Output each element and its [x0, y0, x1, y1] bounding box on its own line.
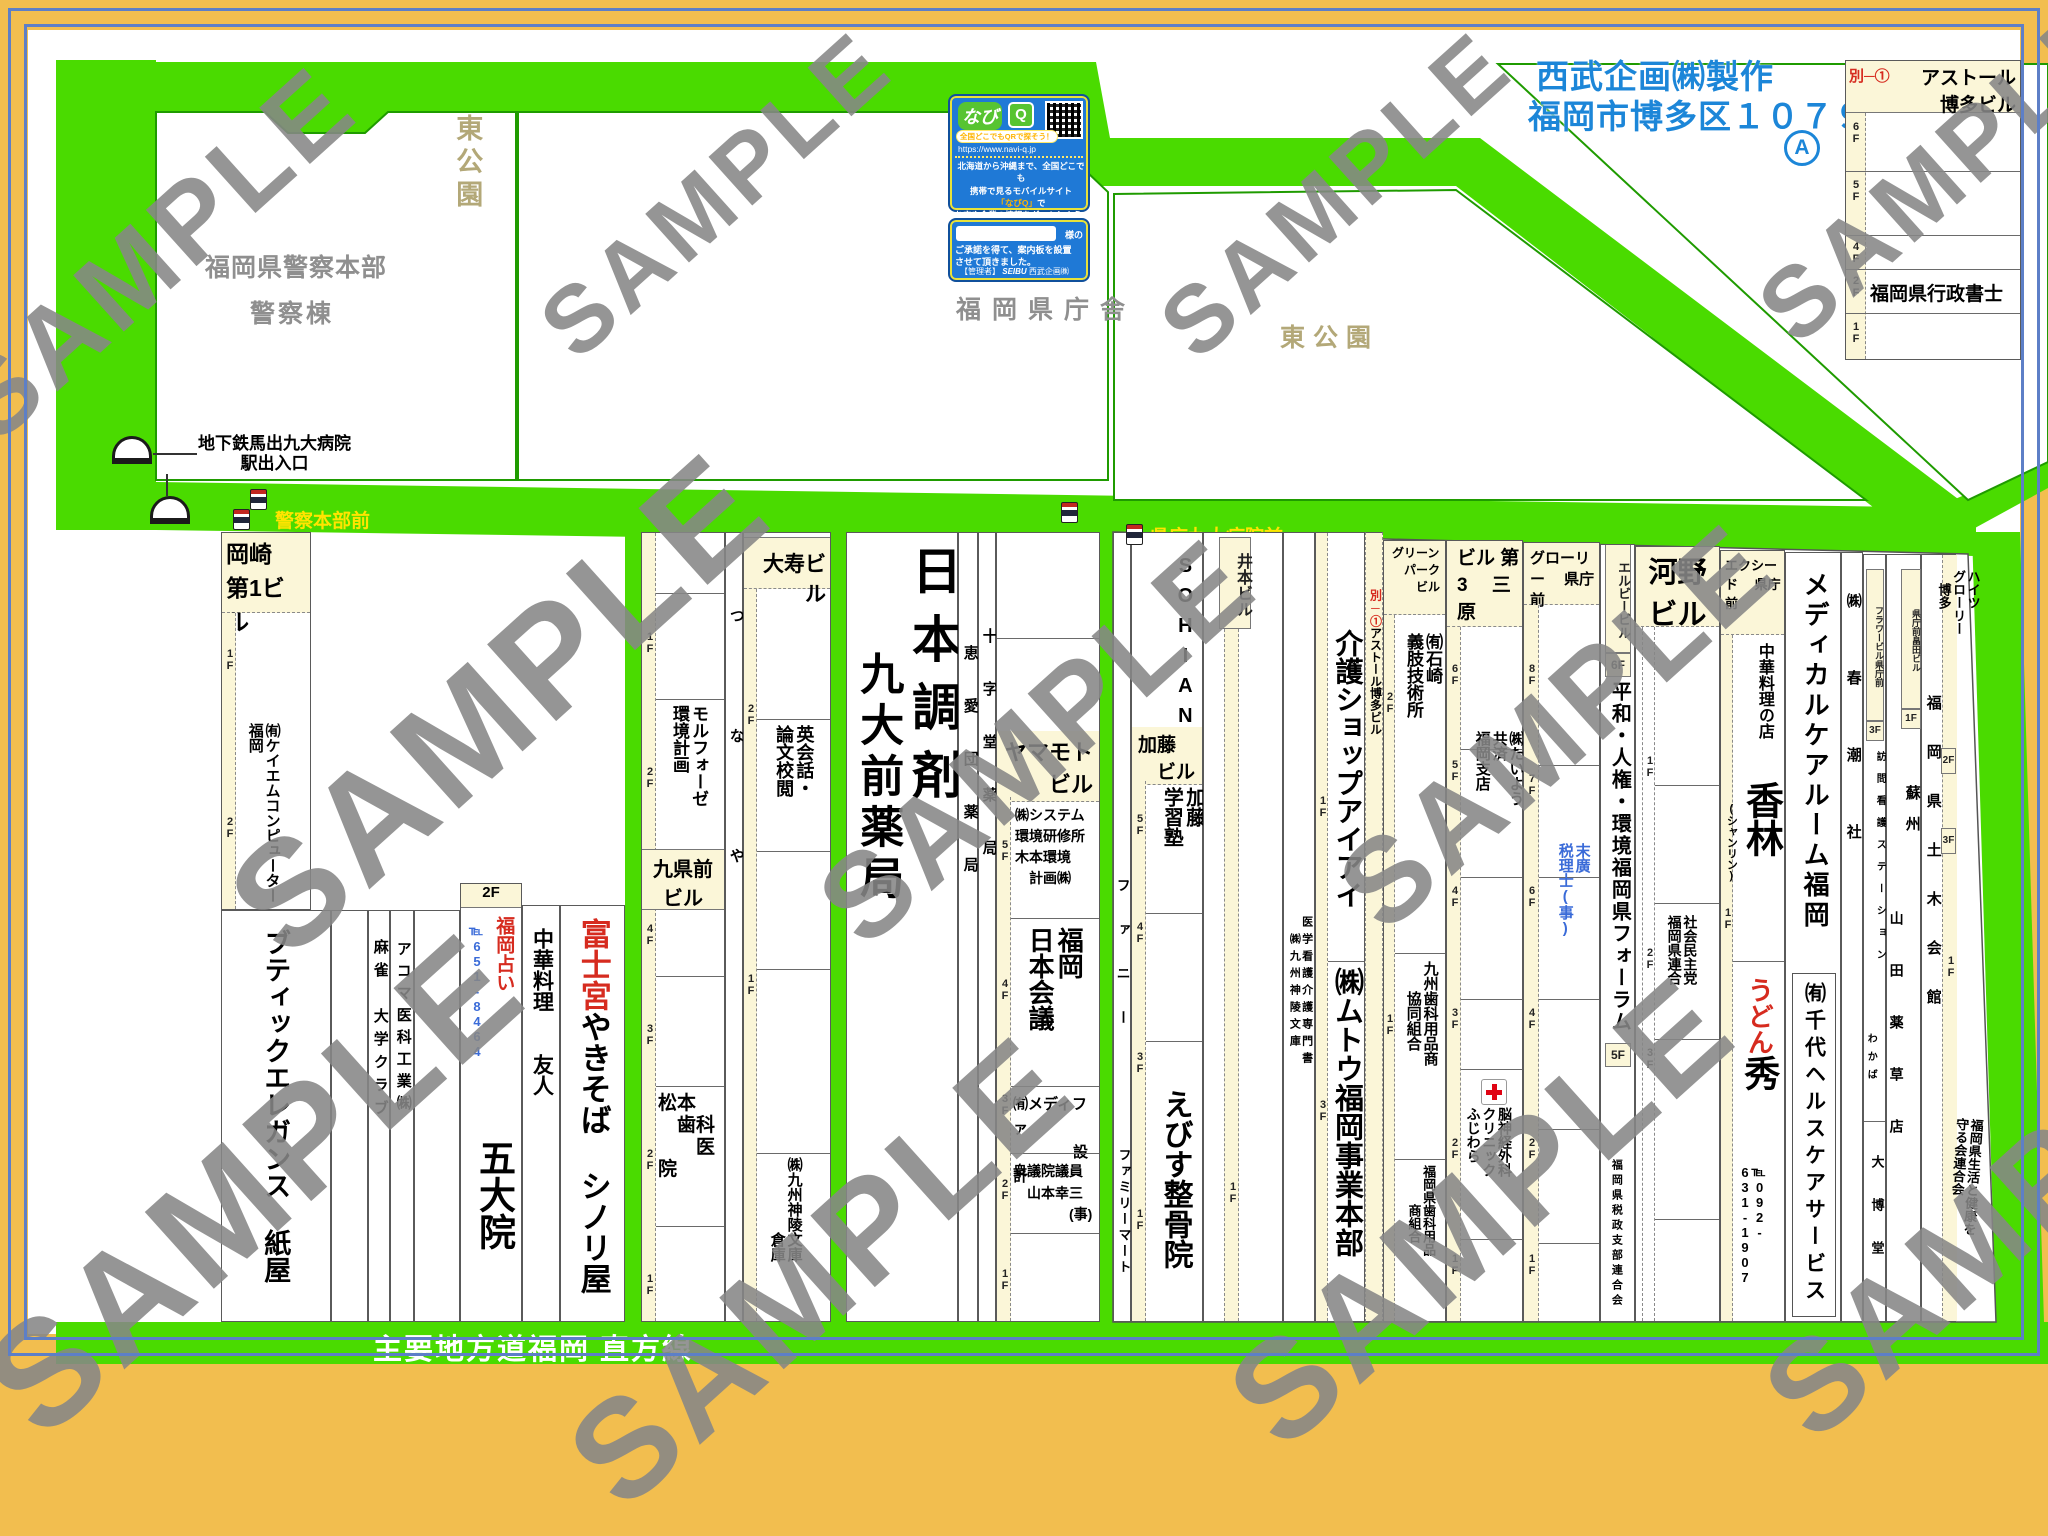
floor-label: 2F	[745, 703, 756, 727]
tenant-yakisoba-shinoriya: やきそば シノリ屋	[576, 1011, 611, 1294]
floor-label: 3F	[1134, 1051, 1145, 1075]
naviq-face-icon: Q	[1008, 102, 1034, 128]
tenant-doboku-kaikan: 福岡県土木会館	[1924, 695, 1941, 1038]
tenant-udon-tel: ℡092- 631-1907	[1737, 1165, 1766, 1285]
tenant-suehiro-zeirishi: 末廣 税理士(事)	[1556, 843, 1590, 937]
greenpark-label: グリーン パーク ビル	[1384, 541, 1445, 615]
bus-stop-icon	[250, 489, 267, 510]
floor-label: 6F	[1526, 885, 1537, 909]
floor-label: 5F	[1134, 813, 1145, 837]
bus-stop-icon	[1126, 524, 1143, 545]
floor-label: 6F	[1449, 663, 1460, 687]
legend-ref: 別─①	[1849, 65, 1890, 86]
tenant-matsumoto-dental: 松本 歯科 医院	[658, 1093, 724, 1180]
shunchosha-building: ㈱春潮社	[1841, 552, 1863, 1322]
chuka-yujin-building: 中華料理 友人	[522, 905, 560, 1322]
naviq-body1: 北海道から沖縄まで、全国どこでも	[958, 161, 1085, 183]
naviq-consent-panel: 様の ご承諾を得て、案内板を設置 させて頂きました。 【管理者】 SEIBU 西…	[948, 218, 1090, 282]
mihara-label: ビル 第3 三原	[1447, 541, 1522, 627]
tenant-ebisu-seikotsuin: えびす整骨院	[1158, 1089, 1192, 1269]
bus-stop-icon	[1061, 502, 1078, 523]
shinryo-bunko-building: 医学看護介護専門書 ㈱九州神陵文庫	[1283, 532, 1315, 1322]
consent-admin: 【管理者】	[960, 267, 1000, 276]
flower-label: フラワービル県庁前	[1866, 569, 1884, 721]
tenant-kourin: 香林	[1739, 781, 1782, 857]
tenant-igaku-shoseki-shinryo: 医学看護介護専門書 ㈱九州神陵文庫	[1288, 916, 1313, 1069]
kyukenmae-label: 九県前 ビル	[642, 849, 724, 910]
tenant-fujinomiya: 富士宮	[576, 918, 611, 1011]
glory-label: グローリー 県庁前	[1524, 543, 1599, 605]
floor-label: 1F	[1722, 907, 1733, 931]
medical-care-building: メディカルケアルーム福岡 ㈲千代ヘルスケアサービス	[1785, 552, 1841, 1322]
tenant-kyushu-shika-kumiai: 九州歯科用品商 協同組合	[1404, 961, 1438, 1066]
floor-box-3f: 3F	[1866, 721, 1884, 741]
exceed-kenchomae-building: エクシード 県庁前 1F 中華料理の店 香林 (シャンリン) うどん秀 ℡092…	[1720, 550, 1785, 1322]
map-area: 西武企画㈱製作 福岡市博多区１０７９ A 東公園 東公園 福岡県警察本部 警察棟…	[28, 30, 2020, 1334]
astor-ref-name: アストール博多ビル	[1368, 627, 1382, 735]
heights-floor-2f: 2F	[1941, 748, 1956, 774]
tenant-chiyo-healthcare: ㈲千代ヘルスケアサービス	[1802, 982, 1826, 1306]
naviq-body2: 携帯で見るモバイルサイト	[970, 186, 1072, 196]
tenant-medical-care-room: メディカルケアルーム福岡	[1800, 571, 1829, 931]
floor-box-1f: 1F	[1901, 709, 1921, 729]
tenant-kato-gakushujuku: 加藤 学習塾	[1160, 787, 1205, 847]
tenant-godaiin: 五大院	[473, 1139, 514, 1250]
naviq-logo: なび	[958, 102, 1002, 130]
floor-label: 4F	[999, 978, 1010, 1002]
naviq-promo-panel: なび Q 全国どこでもQRで探そう！ https://www.navi-q.jp…	[948, 94, 1090, 212]
tenant-yamada-yakusoten: 山田薬草店	[1888, 911, 1904, 1171]
floor-label: 2F	[644, 1148, 655, 1172]
floor-2f-header: 2F	[461, 884, 521, 908]
floor-label: 2F	[1384, 691, 1395, 715]
park-label-right: 東公園	[1280, 318, 1379, 354]
bus-stop-keisatsu: 警察本部前	[275, 506, 370, 533]
floor-label: 1F	[1317, 795, 1328, 819]
police-bldg-label: 警察棟	[250, 294, 334, 330]
flower-bldg-kenchomae: フラワービル県庁前 3F 訪問看護ステーション わかば 大博堂	[1863, 554, 1886, 1322]
okazaki-label: 岡崎 第1ビル	[222, 533, 310, 613]
floor-label: 4F	[644, 923, 655, 947]
consent-sama: 様の	[1065, 228, 1083, 241]
legend-floor-6f: 6F	[1850, 121, 1861, 145]
floor-label: 1F	[1644, 755, 1655, 779]
mutou-building: 1F 3F 介護ショップアイアイ ㈱ムトウ福岡事業本部	[1315, 532, 1365, 1322]
floor-label: 1F	[745, 973, 756, 997]
tenant-morphose-kankyokeikaku: モルフォーゼ 環境計画	[670, 705, 708, 807]
floor-label: 1F	[1384, 1013, 1395, 1037]
tsunaya-building: つなや	[725, 532, 743, 1322]
tenant-soshu: 蘇州	[1903, 785, 1920, 847]
maker-title-line2: 福岡市博多区１０７９	[1528, 90, 1868, 138]
floor-label: 1F	[224, 648, 235, 672]
tenant-kourin-reading: (シャンリン)	[1725, 803, 1737, 882]
floor-label: 1F	[644, 1273, 655, 1297]
floor-label: 3F	[1317, 1099, 1328, 1123]
shinoriya-building: 富士宮やきそば シノリ屋	[560, 905, 625, 1322]
floor-label: 3F	[644, 1023, 655, 1047]
tenant-mutou-fukuoka: ㈱ムトウ福岡事業本部	[1330, 967, 1362, 1257]
tenant-udon: うどん	[1744, 977, 1774, 1055]
consent-admin-co: 西武企画㈱	[1029, 267, 1069, 276]
naviq-slogan: 全国どこでもQRで探そう！	[956, 130, 1058, 143]
naviq-url: https://www.navi-q.jp	[958, 144, 1036, 154]
floor-label: 4F	[1134, 921, 1145, 945]
astor-ref-mark: 別─①	[1368, 589, 1382, 627]
tenant-wakaba: わかば	[1865, 1033, 1876, 1087]
tenant-homon-kango: 訪問看護ステーション	[1874, 751, 1885, 971]
tenant-chuka-no-mise: 中華料理の店	[1755, 643, 1773, 739]
floor-label: 1F	[1227, 1181, 1238, 1205]
heights-glory-label: ハイツ グローリー 博多	[1936, 570, 1980, 635]
hatakeda-label: 県庁前畠田ビル	[1901, 569, 1921, 709]
floor-label: 1F	[999, 1268, 1010, 1292]
floor-label: 1F	[1945, 955, 1956, 979]
floor-label: 2F	[644, 766, 655, 790]
tenant-eikaiwa-ronbun: 英会話・ 論文校閲	[774, 725, 814, 797]
tenant-ishizaki-gishi: ㈲石崎 義肢技術所	[1404, 633, 1442, 718]
subway-entrance-label: 地下鉄馬出九大病院 駅出入口	[198, 434, 351, 473]
naviq-body3: で	[1037, 198, 1046, 208]
tenant-shunchosha: ㈱春潮社	[1844, 593, 1861, 901]
floor-label: 3F	[1449, 1007, 1460, 1031]
tenant-fanny: ファニー	[1115, 878, 1131, 1054]
tenant-familymart: ファミリーマート	[1116, 1148, 1131, 1276]
floor-label: 4F	[1526, 1007, 1537, 1031]
pref-office-label: 福岡県庁舎	[956, 290, 1136, 326]
naviq-body3-brand: 「なびQ」	[996, 198, 1037, 208]
seibu-logo: SEIBU	[1002, 267, 1026, 276]
consent-note1: ご承諾を得て、案内板を設置	[955, 245, 1072, 255]
tenant-fukuoka-nihonkaigi: 福岡 日本会議	[1025, 927, 1083, 1031]
consent-name-box	[956, 226, 1056, 241]
bus-stop-icon	[233, 509, 250, 530]
park-label-left: 東公園	[452, 114, 482, 213]
tenant-tsunaya: つなや	[727, 608, 744, 968]
floor-label: 1F	[1134, 1208, 1145, 1232]
heights-floor-3f: 3F	[1941, 828, 1956, 854]
